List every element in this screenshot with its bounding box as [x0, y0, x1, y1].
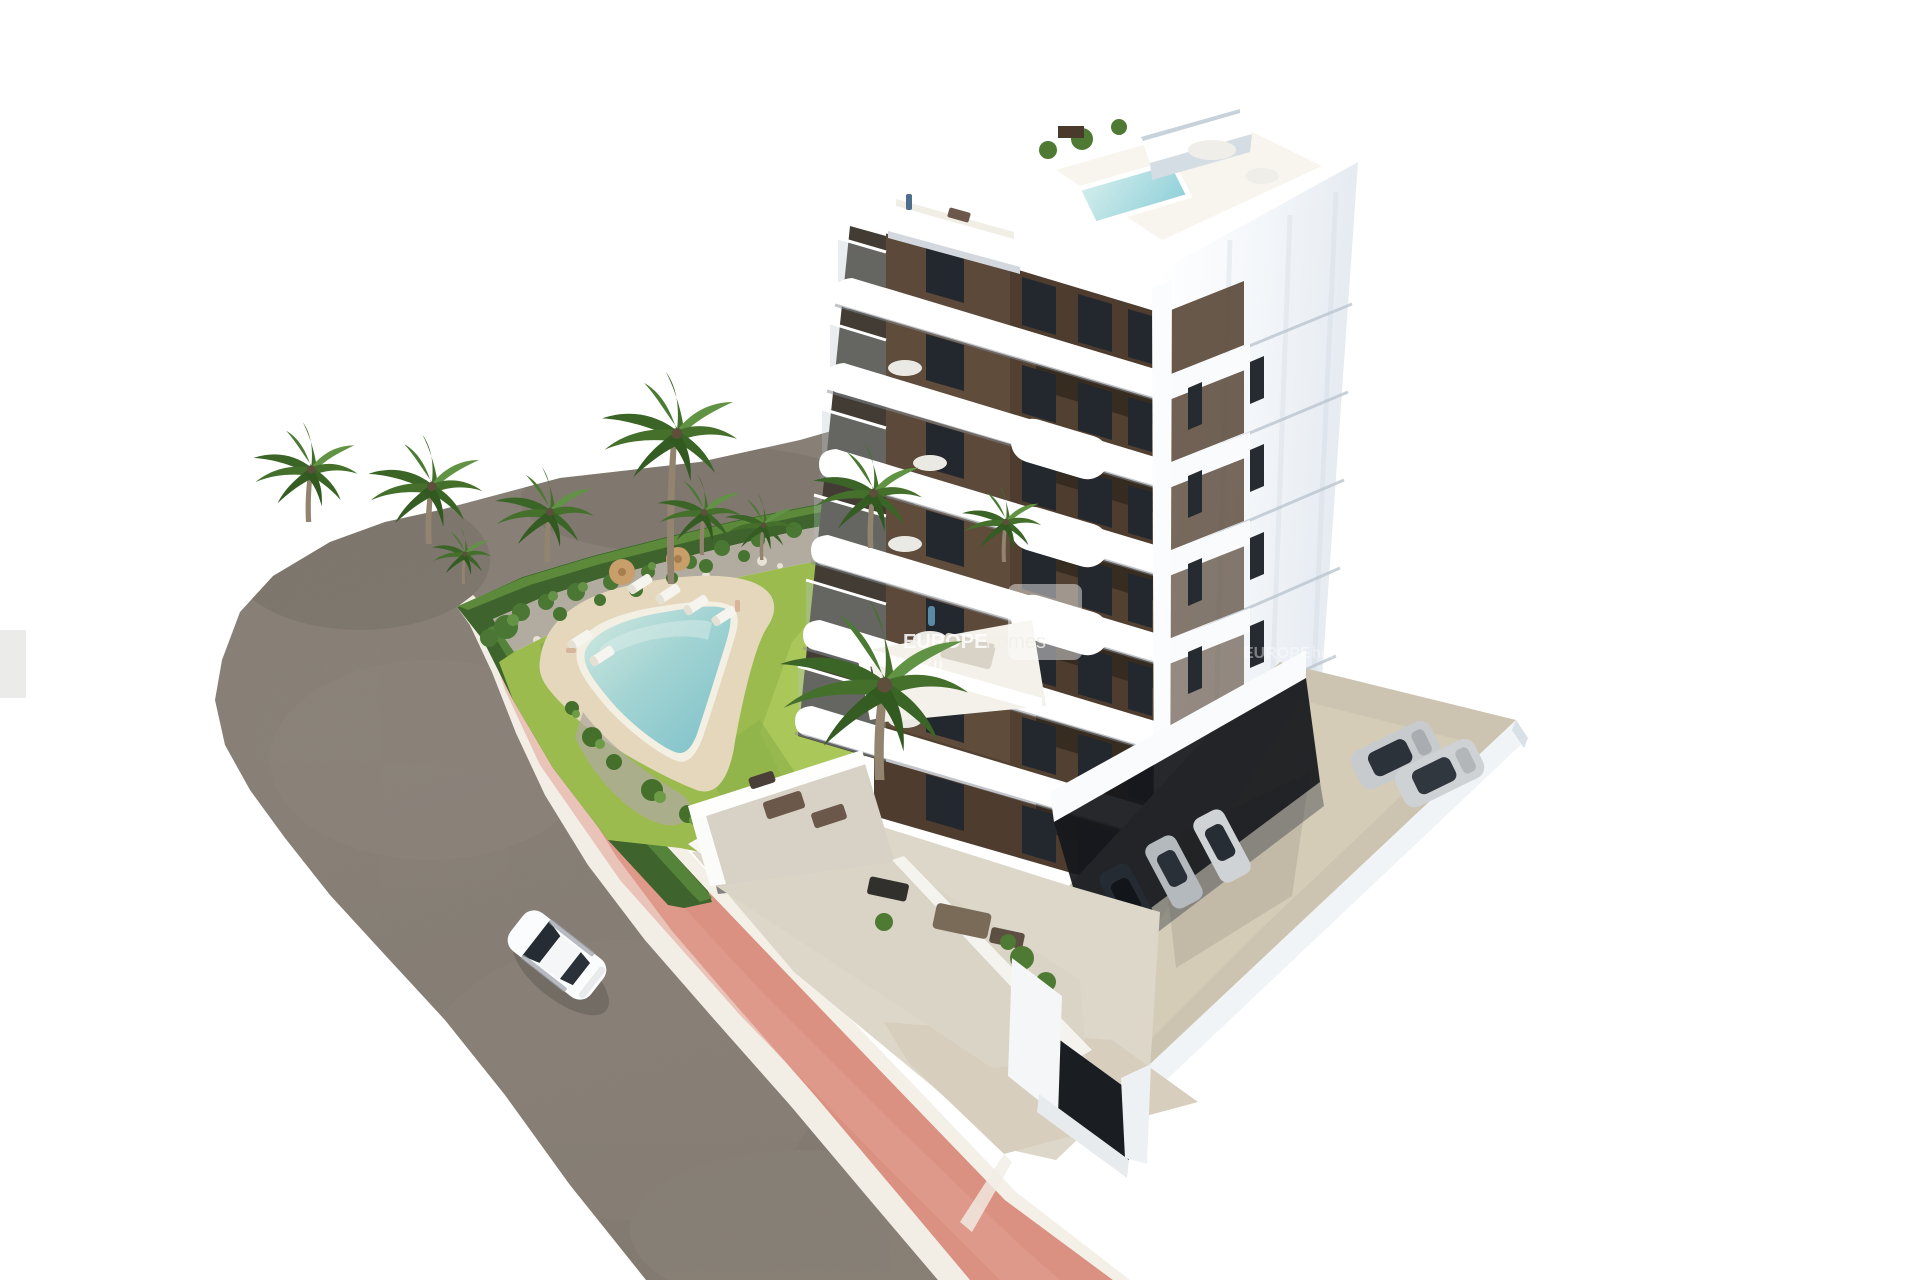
svg-text:homes: homes — [986, 631, 1046, 653]
svg-text:EUROPE: EUROPE — [1243, 645, 1311, 662]
svg-text:homes: homes — [1312, 645, 1360, 662]
svg-text:EUROPE: EUROPE — [903, 631, 987, 653]
